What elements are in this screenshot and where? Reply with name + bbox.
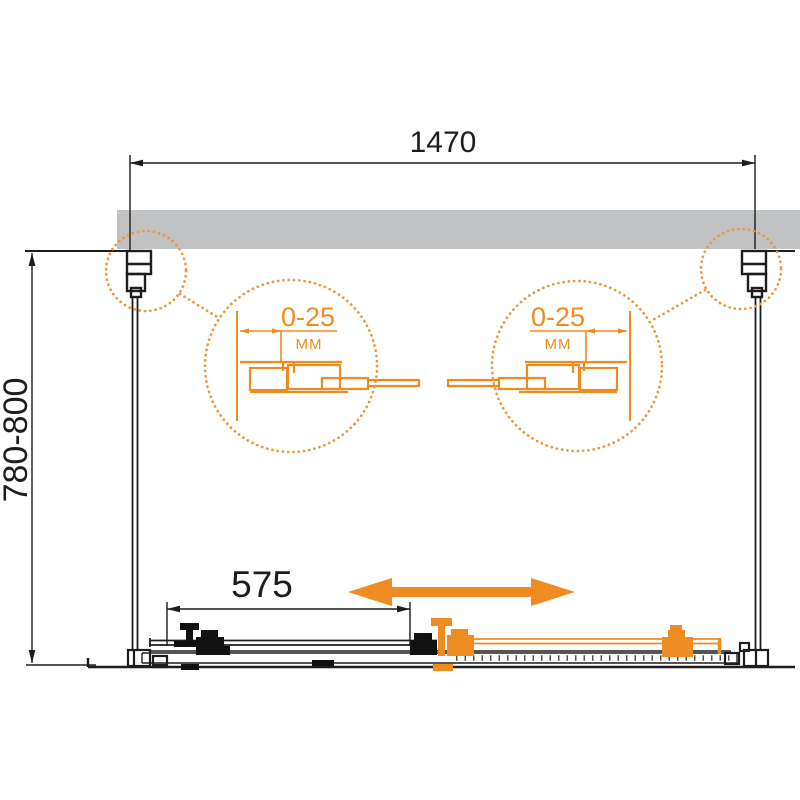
callout-connector-left — [180, 294, 219, 318]
left-wall-profile — [127, 251, 151, 297]
installation-diagram: 1470 780-800 — [0, 0, 800, 800]
door-width-label: 575 — [231, 564, 293, 605]
depth-dimension: 780-800 — [0, 253, 96, 665]
detail-left-range-label: 0-25 — [281, 302, 335, 332]
dim-arrow-bottom — [29, 650, 36, 663]
right-side-glass — [756, 296, 761, 650]
detail-right-range-label: 0-25 — [531, 302, 585, 332]
dim-arrow-left — [130, 160, 143, 167]
detail-right-unit-label: MM — [545, 336, 572, 353]
width-dimension-label: 1470 — [410, 126, 477, 159]
depth-dimension-label: 780-800 — [0, 378, 35, 503]
right-orange-roller — [662, 625, 693, 657]
center-black-roller — [312, 633, 437, 666]
dim-arrow-top — [29, 253, 36, 266]
left-side-glass — [133, 296, 138, 650]
wall-bar — [117, 210, 800, 249]
callout-connector-right — [651, 290, 705, 321]
right-wall-profile — [742, 251, 766, 297]
dim-arrow-right — [742, 160, 755, 167]
detail-left-unit-label: MM — [296, 336, 323, 353]
bottom-track-assembly — [88, 618, 795, 671]
slide-direction-arrow — [348, 578, 575, 606]
